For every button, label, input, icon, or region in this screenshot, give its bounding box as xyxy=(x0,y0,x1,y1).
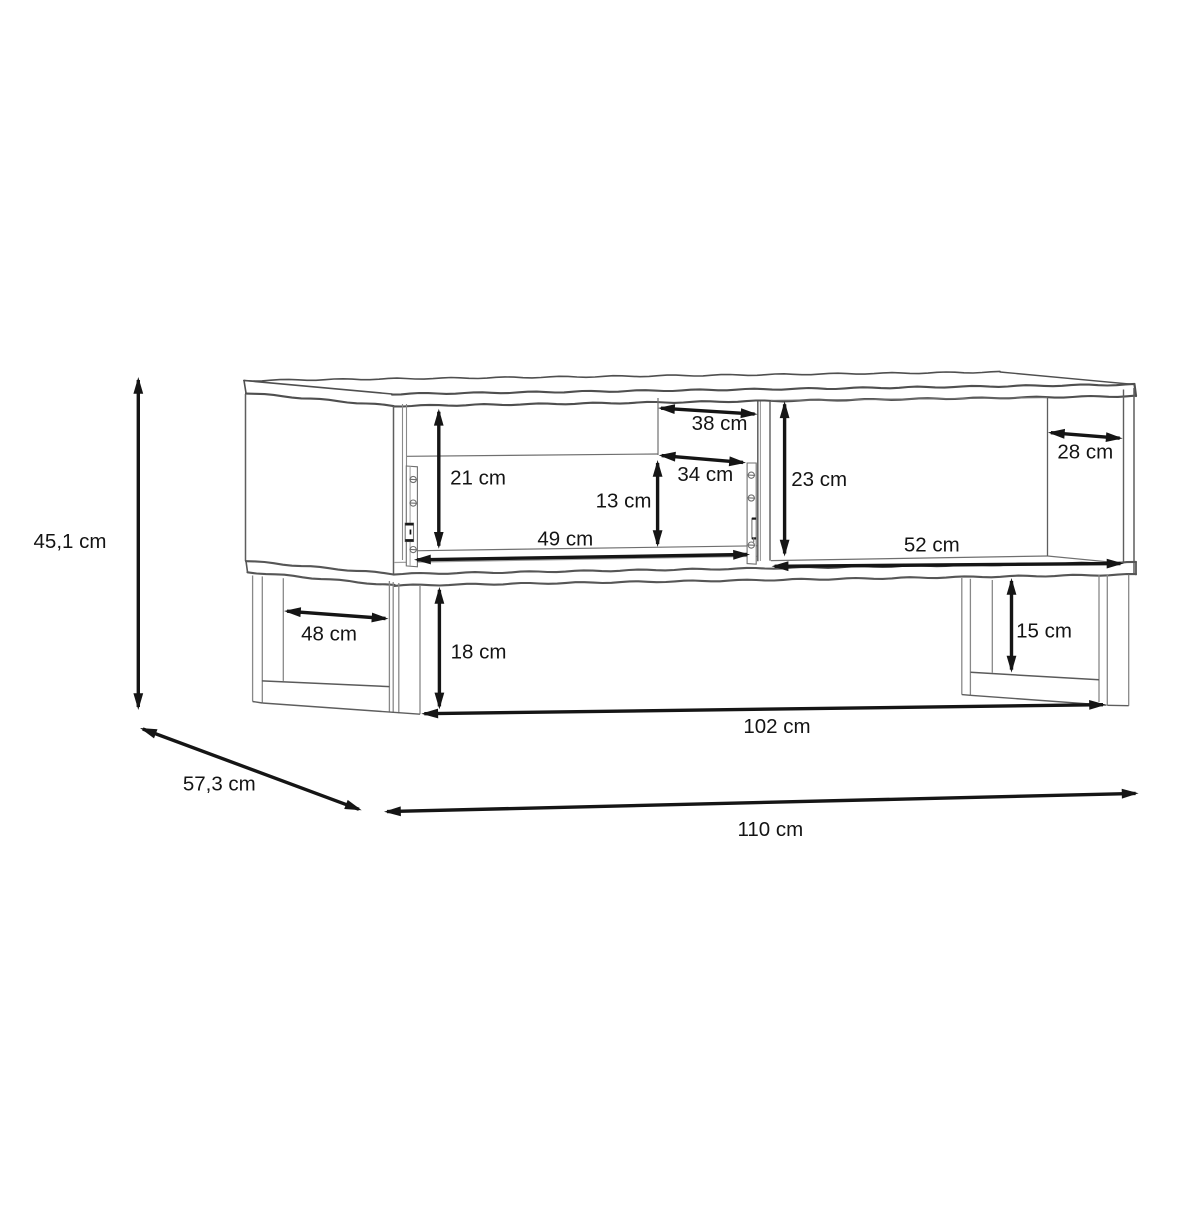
svg-text:110 cm: 110 cm xyxy=(737,818,803,841)
svg-text:57,3 cm: 57,3 cm xyxy=(183,772,256,795)
svg-text:15 cm: 15 cm xyxy=(1016,619,1072,642)
svg-text:18 cm: 18 cm xyxy=(451,640,507,663)
svg-text:23 cm: 23 cm xyxy=(791,468,847,491)
svg-text:52 cm: 52 cm xyxy=(904,534,960,557)
svg-text:45,1 cm: 45,1 cm xyxy=(34,530,107,553)
svg-text:38 cm: 38 cm xyxy=(692,412,748,435)
svg-text:49 cm: 49 cm xyxy=(537,528,593,551)
svg-text:21 cm: 21 cm xyxy=(450,467,506,490)
svg-text:34 cm: 34 cm xyxy=(677,463,733,486)
svg-text:13 cm: 13 cm xyxy=(596,489,652,512)
svg-text:48 cm: 48 cm xyxy=(301,622,357,645)
svg-text:28 cm: 28 cm xyxy=(1057,441,1113,464)
svg-text:102 cm: 102 cm xyxy=(743,715,810,738)
